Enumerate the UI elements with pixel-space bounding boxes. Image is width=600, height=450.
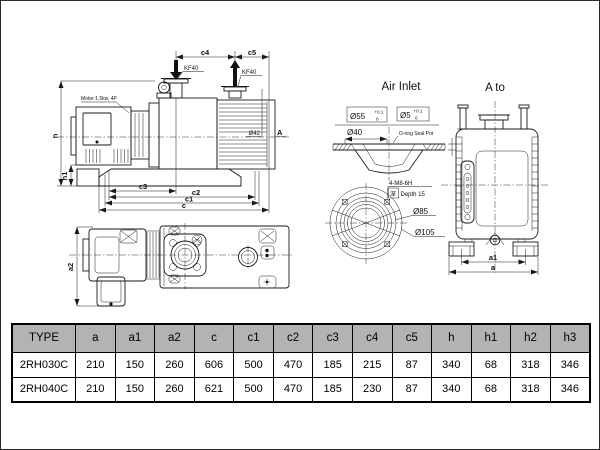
table-cell: 346 bbox=[550, 352, 590, 377]
table-cell-type: 2RH030C bbox=[12, 352, 76, 377]
svg-text:+0.1: +0.1 bbox=[375, 110, 384, 115]
exhaust-port-top bbox=[239, 245, 258, 269]
table-header-cell: h1 bbox=[471, 324, 511, 352]
air-inlet-title: Air Inlet bbox=[382, 81, 422, 93]
table-cell: 230 bbox=[352, 377, 392, 402]
svg-text:+0.1: +0.1 bbox=[414, 109, 423, 114]
table-cell: 318 bbox=[511, 377, 551, 402]
seal-pot-label: O-ring Seal Pot bbox=[399, 131, 434, 137]
dim-label-h: h bbox=[53, 133, 60, 138]
svg-text:Ø55: Ø55 bbox=[350, 112, 366, 121]
motor-support bbox=[77, 169, 99, 186]
table-header-cell: c bbox=[194, 324, 234, 352]
table-row: 2RH030C 210 150 260 606 500 470 185 215 … bbox=[12, 352, 590, 377]
table-cell: 150 bbox=[115, 352, 155, 377]
top-view-drawing: a2 bbox=[63, 215, 295, 315]
table-cell: 340 bbox=[432, 352, 472, 377]
exhaust-flange-label: KF40 bbox=[242, 70, 257, 76]
top-flange-port bbox=[478, 115, 510, 129]
svg-text:Depth 15: Depth 15 bbox=[401, 192, 426, 198]
oring-dia-callout: Ø5 +0.1 0 bbox=[397, 107, 429, 121]
dim-label-a1: a1 bbox=[489, 253, 497, 262]
table-cell: 185 bbox=[313, 352, 353, 377]
table-cell: 87 bbox=[392, 377, 432, 402]
exhaust-arrow-icon bbox=[230, 60, 240, 86]
table-cell: 606 bbox=[194, 352, 234, 377]
pump-housing bbox=[456, 129, 538, 239]
motor-body bbox=[71, 107, 131, 165]
table-cell: 470 bbox=[273, 352, 313, 377]
bore-dia-label: Ø40 bbox=[347, 128, 363, 137]
table-cell: 68 bbox=[471, 377, 511, 402]
table-cell: 210 bbox=[76, 352, 116, 377]
table-cell: 215 bbox=[352, 352, 392, 377]
table-cell: 346 bbox=[550, 377, 590, 402]
svg-text:0: 0 bbox=[376, 117, 379, 122]
side-view-drawing: KF40 KF40 Motor:1.5kw, 4P c4 c5 Ø42 A bbox=[53, 45, 303, 217]
motor-spec-label: Motor:1.5kw, 4P bbox=[81, 96, 118, 102]
a-direction-view: A to bbox=[433, 79, 600, 279]
table-header-cell: c1 bbox=[234, 324, 274, 352]
inlet-arrow-icon bbox=[170, 60, 182, 80]
cooling-fins bbox=[217, 100, 275, 169]
cover-panel bbox=[476, 151, 528, 226]
table-header-cell: h bbox=[432, 324, 472, 352]
table-header-cell: a2 bbox=[155, 324, 195, 352]
table-cell: 621 bbox=[194, 377, 234, 402]
pump-body bbox=[159, 98, 217, 169]
inlet-flange-label: KF40 bbox=[184, 66, 199, 72]
table-cell: 260 bbox=[155, 352, 195, 377]
table-cell: 470 bbox=[273, 377, 313, 402]
groove-dia-callout: Ø55 +0.1 0 bbox=[347, 107, 387, 122]
dim-label-c5: c5 bbox=[248, 48, 256, 57]
table-header-cell: a1 bbox=[115, 324, 155, 352]
dimension-table: TYPE a a1 a2 c c1 c2 c3 c4 c5 h h1 h2 h3… bbox=[11, 323, 591, 403]
mounting-tabs bbox=[259, 229, 276, 288]
table-header-cell: a bbox=[76, 324, 116, 352]
lifting-eyebolt bbox=[157, 82, 171, 98]
table-header-cell: c4 bbox=[352, 324, 392, 352]
coupling-housing bbox=[131, 103, 159, 167]
a-view-title: A to bbox=[485, 82, 505, 94]
dim-label-c4: c4 bbox=[201, 48, 210, 57]
table-row: 2RH040C 210 150 260 621 500 470 185 230 … bbox=[12, 377, 590, 402]
top-posts bbox=[457, 105, 530, 129]
dim-label-a2: a2 bbox=[66, 263, 75, 271]
catalog-page: KF40 KF40 Motor:1.5kw, 4P c4 c5 Ø42 A bbox=[0, 0, 600, 450]
table-cell-type: 2RH040C bbox=[12, 377, 76, 402]
dim-label-c: c bbox=[182, 201, 186, 210]
table-cell: 150 bbox=[115, 377, 155, 402]
table-cell: 318 bbox=[511, 352, 551, 377]
svg-text:Ø5: Ø5 bbox=[400, 111, 411, 120]
table-cell: 500 bbox=[234, 352, 274, 377]
table-cell: 500 bbox=[234, 377, 274, 402]
dim-label-h1: h1 bbox=[60, 172, 69, 181]
table-cell: 87 bbox=[392, 352, 432, 377]
view-direction-label: A bbox=[277, 128, 283, 137]
table-header-cell: h2 bbox=[511, 324, 551, 352]
oil-sight-glass bbox=[461, 161, 474, 223]
table-cell: 68 bbox=[471, 352, 511, 377]
table-cell: 185 bbox=[313, 377, 353, 402]
bolt-circle-dia-label: Ø85 bbox=[413, 207, 429, 216]
pump-body-top bbox=[160, 226, 289, 288]
dim-label-exhaust-dia: Ø42 bbox=[249, 131, 261, 137]
table-header-row: TYPE a a1 a2 c c1 c2 c3 c4 c5 h h1 h2 h3 bbox=[12, 324, 590, 352]
svg-text:0: 0 bbox=[415, 116, 418, 121]
table-cell: 210 bbox=[76, 377, 116, 402]
exhaust-port bbox=[221, 60, 249, 98]
table-header-cell: TYPE bbox=[12, 324, 76, 352]
bolt-spec-label: 4-M8-6H bbox=[389, 181, 412, 187]
table-header-cell: h3 bbox=[550, 324, 590, 352]
svg-text:深: 深 bbox=[390, 190, 396, 198]
table-header-cell: c2 bbox=[273, 324, 313, 352]
dim-label-c3: c3 bbox=[139, 182, 147, 191]
base-plate bbox=[99, 169, 241, 186]
table-cell: 340 bbox=[432, 377, 472, 402]
motor-leader-line bbox=[81, 102, 129, 113]
table-cell: 260 bbox=[155, 377, 195, 402]
depth-label: 深 Depth 15 bbox=[389, 188, 426, 198]
table-header-cell: c3 bbox=[313, 324, 353, 352]
table-header-cell: c5 bbox=[392, 324, 432, 352]
